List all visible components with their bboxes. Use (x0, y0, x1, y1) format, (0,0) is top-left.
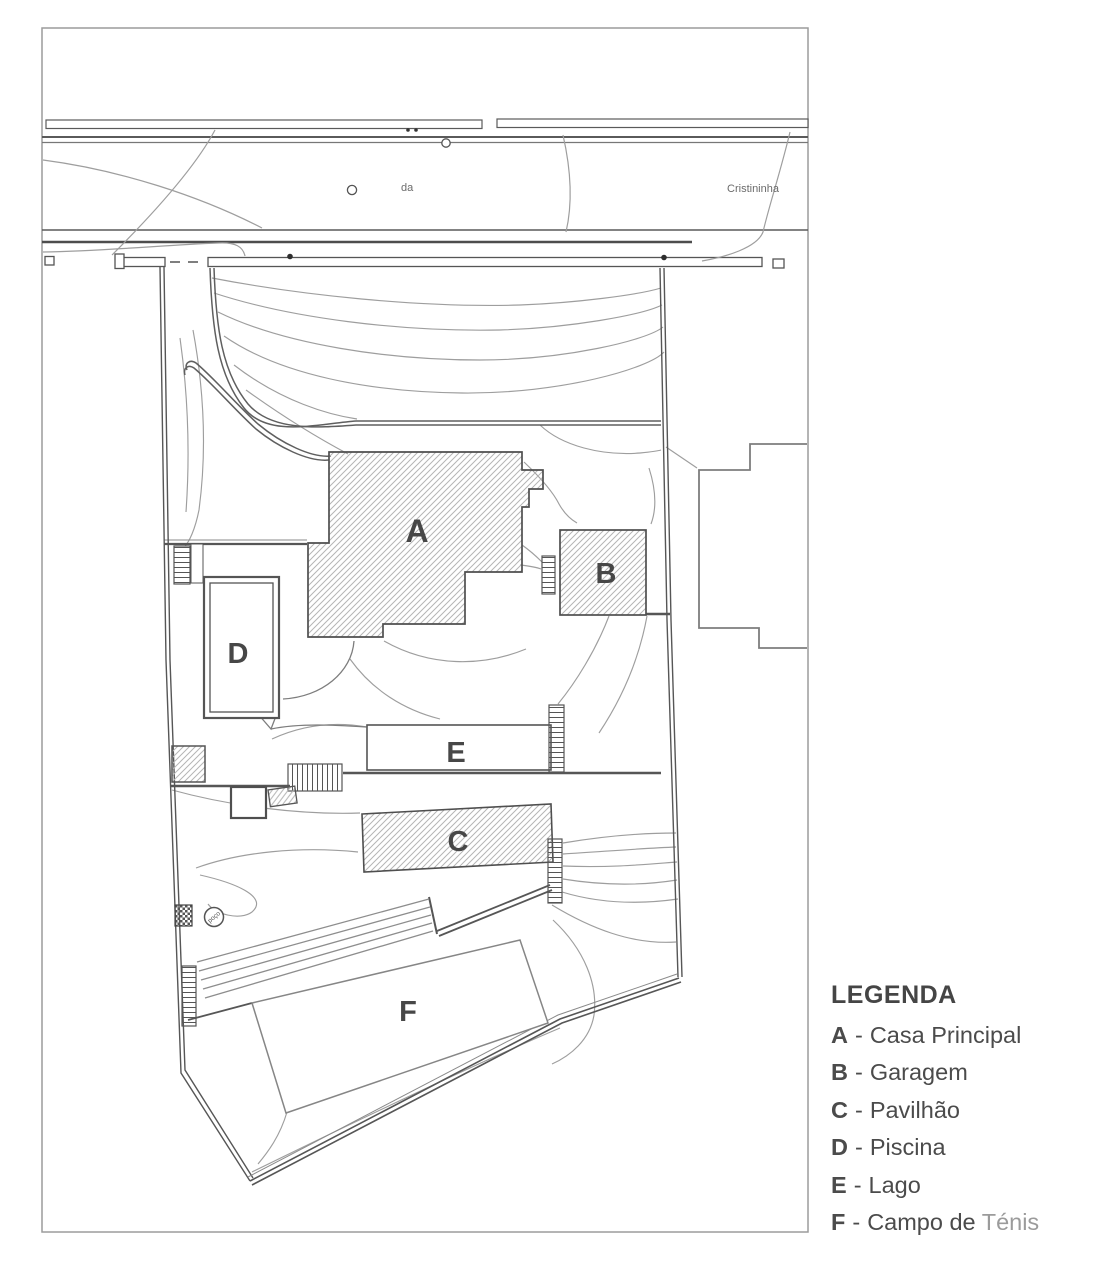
gate-post-dot (661, 255, 667, 261)
label-court-f: F (399, 996, 417, 1028)
legend-item-a: A-Casa Principal (831, 1017, 1039, 1054)
landing-west-of-house (191, 544, 203, 583)
label-building-b: B (596, 558, 617, 590)
legend: LEGENDA A-Casa Principal B-Garagem C-Pav… (831, 981, 1039, 1241)
gate-post-dot (287, 254, 293, 260)
label-building-c: C (448, 826, 469, 858)
street-name-label: Cristininha (727, 183, 780, 195)
small-hatched-structure (172, 746, 205, 782)
stairs-west-of-lake (288, 764, 342, 791)
legend-item-e: E-Lago (831, 1167, 1039, 1204)
label-building-a: A (405, 513, 428, 549)
label-pool-d: D (228, 638, 249, 670)
driveway (185, 268, 661, 460)
road-marker-circle (442, 139, 450, 147)
checkered-structure (175, 905, 192, 926)
neighbor-building-outline (699, 444, 807, 648)
small-structures (172, 746, 297, 927)
stairs-east-of-pavilion (548, 839, 562, 903)
small-white-structure (231, 787, 266, 818)
small-hatched-structure (268, 786, 297, 807)
stairs-west-of-court (182, 966, 196, 1026)
label-lake-e: E (446, 737, 465, 769)
stairs-east-of-lake (549, 705, 564, 772)
site-plan-page: da Cristininha poço A B C D E F LEGENDA … (0, 0, 1111, 1284)
street-fragment-label: da (401, 182, 414, 194)
legend-item-f: F-Campo de Ténis (831, 1204, 1039, 1241)
legend-item-b: B-Garagem (831, 1054, 1039, 1091)
stairs-west-of-house (174, 546, 190, 584)
legend-item-c: C-Pavilhão (831, 1092, 1039, 1129)
stairs-house-to-garage (542, 556, 555, 594)
road-marker-circle (347, 185, 356, 194)
legend-item-d: D-Piscina (831, 1129, 1039, 1166)
legend-title: LEGENDA (831, 981, 1039, 1010)
